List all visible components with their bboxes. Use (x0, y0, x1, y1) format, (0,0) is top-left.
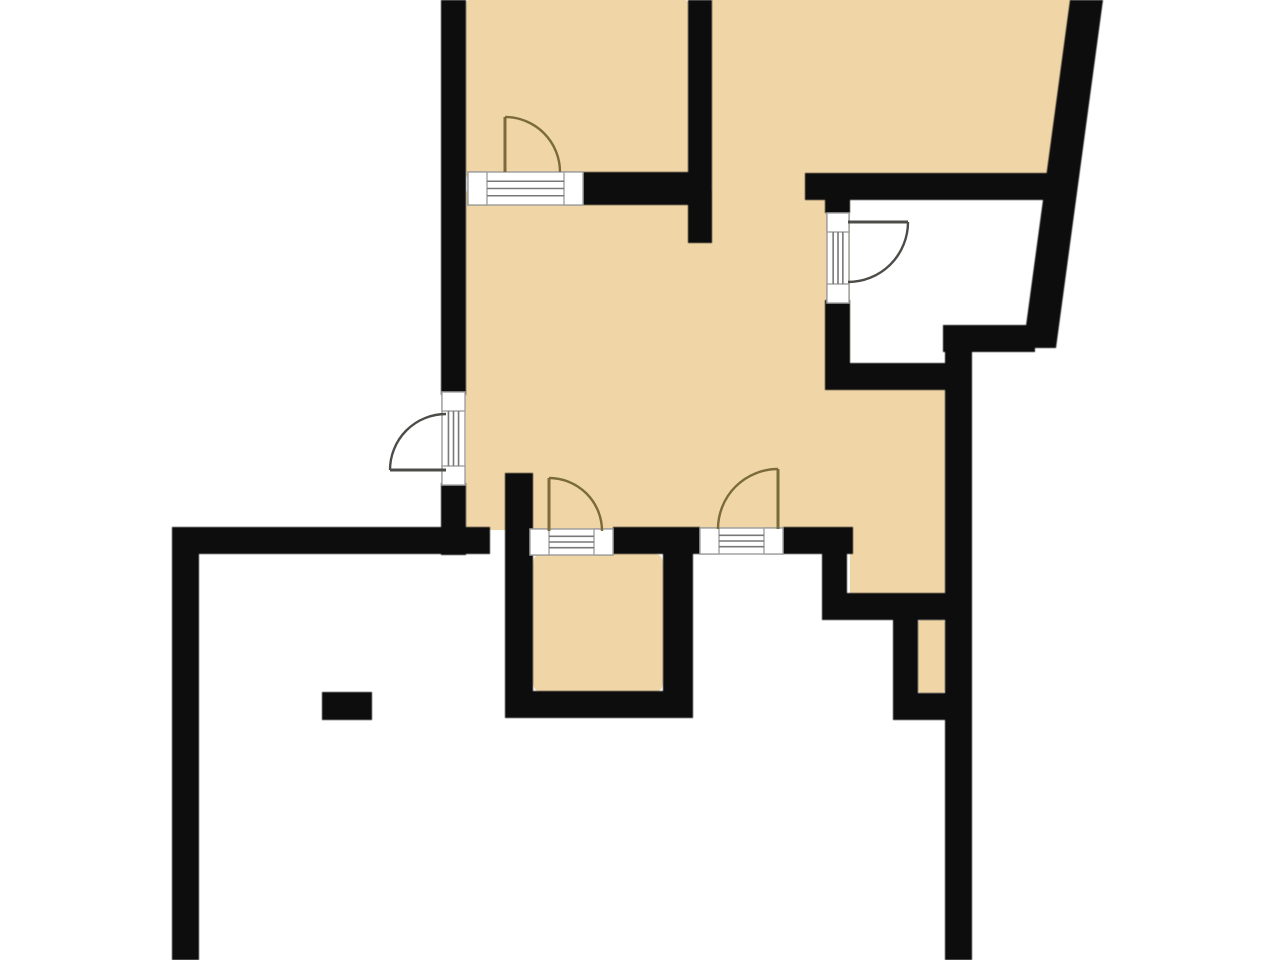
room-floor-top-right (712, 0, 1072, 192)
wall-left-upper (441, 0, 466, 395)
wall-lower-room-top-right (783, 527, 853, 554)
door-arc (848, 222, 908, 282)
room-floor-top-left (466, 0, 688, 178)
wall-closet-left-lower (825, 300, 850, 367)
wall-closet-bottom-left (825, 363, 953, 390)
sill-jamb (594, 529, 613, 555)
wall-right-arm-step (822, 553, 847, 620)
sill-jamb (564, 172, 583, 205)
door-swing-entry-left (390, 414, 446, 470)
door-sill-main-room (700, 528, 783, 554)
wall-closet-top (805, 173, 1062, 200)
wall-closet-bottom-right (943, 325, 1035, 352)
sill-jamb (764, 528, 783, 554)
wall-outer-left (172, 527, 199, 960)
wall-top-middle-vertical (688, 0, 712, 243)
wall-hallway-left (505, 473, 533, 718)
door-sill-closet (827, 213, 849, 303)
room-floor-right-arm (850, 385, 945, 610)
sill-jamb (827, 284, 849, 303)
door-swing-closet (848, 222, 908, 282)
door-sill-hallway (530, 529, 613, 555)
pillar (322, 692, 372, 720)
wall-lower-room-top-left (172, 527, 490, 554)
sill-jamb (700, 528, 719, 554)
room-floor-nook (918, 620, 945, 693)
sill-jamb (468, 172, 487, 205)
wall-nook-bottom (893, 693, 947, 720)
sill-jamb (530, 529, 549, 555)
door-arc (390, 414, 446, 470)
room-floor-hallway (533, 553, 663, 693)
floor-plan-canvas (0, 0, 1280, 960)
floor-plan-page (0, 0, 1280, 960)
door-sill-top-left-room (468, 172, 583, 205)
wall-right-arm-bottom (847, 593, 947, 620)
wall-hallway-right (663, 527, 693, 718)
wall-nook-left (893, 620, 918, 696)
sill-jamb (442, 392, 465, 411)
sill-jamb (827, 213, 849, 232)
wall-outer-right (945, 325, 972, 960)
